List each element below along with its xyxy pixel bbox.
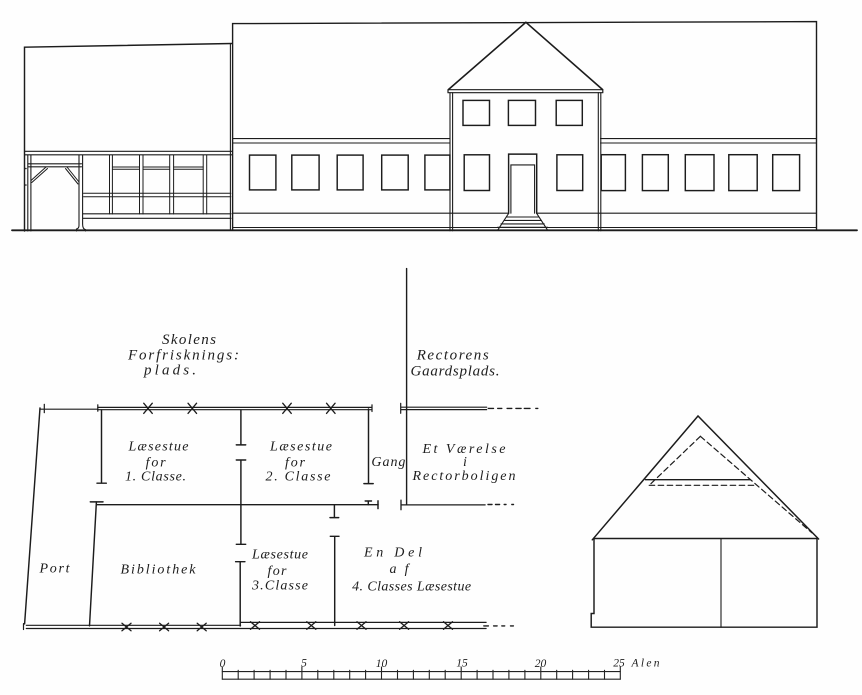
svg-text:3.Classe: 3.Classe [251, 579, 308, 594]
svg-text:Bibliothek: Bibliothek [121, 563, 197, 578]
svg-text:5: 5 [301, 657, 307, 669]
svg-text:Forfrisknings:: Forfrisknings: [127, 348, 239, 364]
svg-text:Gang: Gang [371, 455, 405, 470]
svg-text:25: 25 [613, 657, 625, 669]
svg-text:20: 20 [535, 658, 547, 670]
svg-text:0: 0 [220, 658, 226, 670]
svg-text:15: 15 [456, 657, 468, 669]
svg-text:Gaardsplads.: Gaardsplads. [411, 364, 500, 380]
svg-text:for: for [285, 456, 306, 471]
svg-text:i: i [463, 455, 467, 470]
svg-text:Læsestue: Læsestue [269, 440, 332, 455]
svg-text:for: for [146, 456, 167, 471]
svg-text:Læsestue: Læsestue [128, 440, 189, 455]
svg-text:for: for [268, 564, 288, 579]
svg-text:Port: Port [39, 562, 71, 577]
svg-text:Rectorboligen: Rectorboligen [412, 469, 516, 484]
svg-text:10: 10 [376, 658, 388, 670]
svg-text:Læsestue: Læsestue [251, 548, 308, 563]
svg-text:1. Classe.: 1. Classe. [125, 470, 186, 485]
svg-text:4. Classes Læsestue: 4. Classes Læsestue [352, 580, 471, 595]
svg-text:2. Classe: 2. Classe [266, 470, 331, 485]
svg-text:Skolens: Skolens [162, 332, 216, 348]
svg-text:Rectorens: Rectorens [416, 348, 489, 364]
